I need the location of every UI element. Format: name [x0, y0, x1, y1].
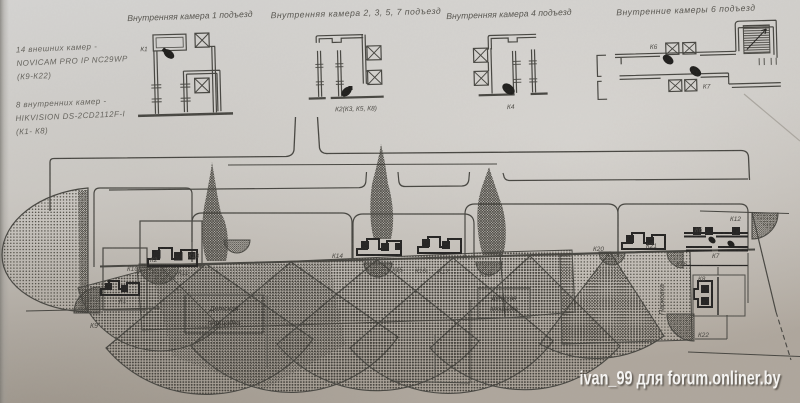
svg-text:К22: К22 [698, 332, 709, 339]
svg-text:К7: К7 [712, 253, 720, 260]
svg-text:К14: К14 [332, 253, 343, 260]
svg-text:К6: К6 [650, 44, 658, 51]
svg-text:К9: К9 [90, 323, 98, 330]
svg-text:К20: К20 [593, 246, 604, 253]
svg-text:Детская: Детская [491, 296, 518, 302]
svg-text:К4: К4 [507, 104, 515, 111]
svg-text:К8: К8 [698, 276, 706, 283]
svg-text:К1: К1 [140, 46, 148, 53]
svg-text:К7: К7 [703, 83, 711, 90]
svg-text:Парковка: Парковка [659, 284, 666, 315]
svg-text:К6: К6 [695, 227, 703, 234]
svg-text:площадка: площадка [490, 307, 519, 313]
svg-text:(К1- К8): (К1- К8) [16, 126, 49, 136]
svg-text:К15-: К15- [392, 267, 405, 274]
svg-text:К2: К2 [150, 257, 158, 264]
svg-text:(К9-К22): (К9-К22) [17, 71, 52, 81]
svg-text:К16-: К16- [415, 268, 428, 275]
svg-text:К10: К10 [127, 266, 138, 273]
svg-text:К18: К18 [480, 272, 491, 279]
svg-text:К21: К21 [646, 243, 657, 250]
svg-text:К13: К13 [188, 253, 199, 260]
svg-text:К2(К3, К5, К8): К2(К3, К5, К8) [335, 105, 377, 113]
svg-text:ivan_99 для forum.onliner.by: ivan_99 для forum.onliner.by [580, 369, 781, 390]
svg-text:К16: К16 [676, 261, 687, 268]
svg-text:К11: К11 [178, 270, 189, 277]
svg-text:К1: К1 [119, 298, 127, 305]
svg-text:К12: К12 [730, 216, 741, 223]
svg-text:Детская: Детская [209, 306, 239, 313]
svg-text:площадка: площадка [208, 319, 241, 327]
svg-text:К17: К17 [438, 269, 449, 276]
